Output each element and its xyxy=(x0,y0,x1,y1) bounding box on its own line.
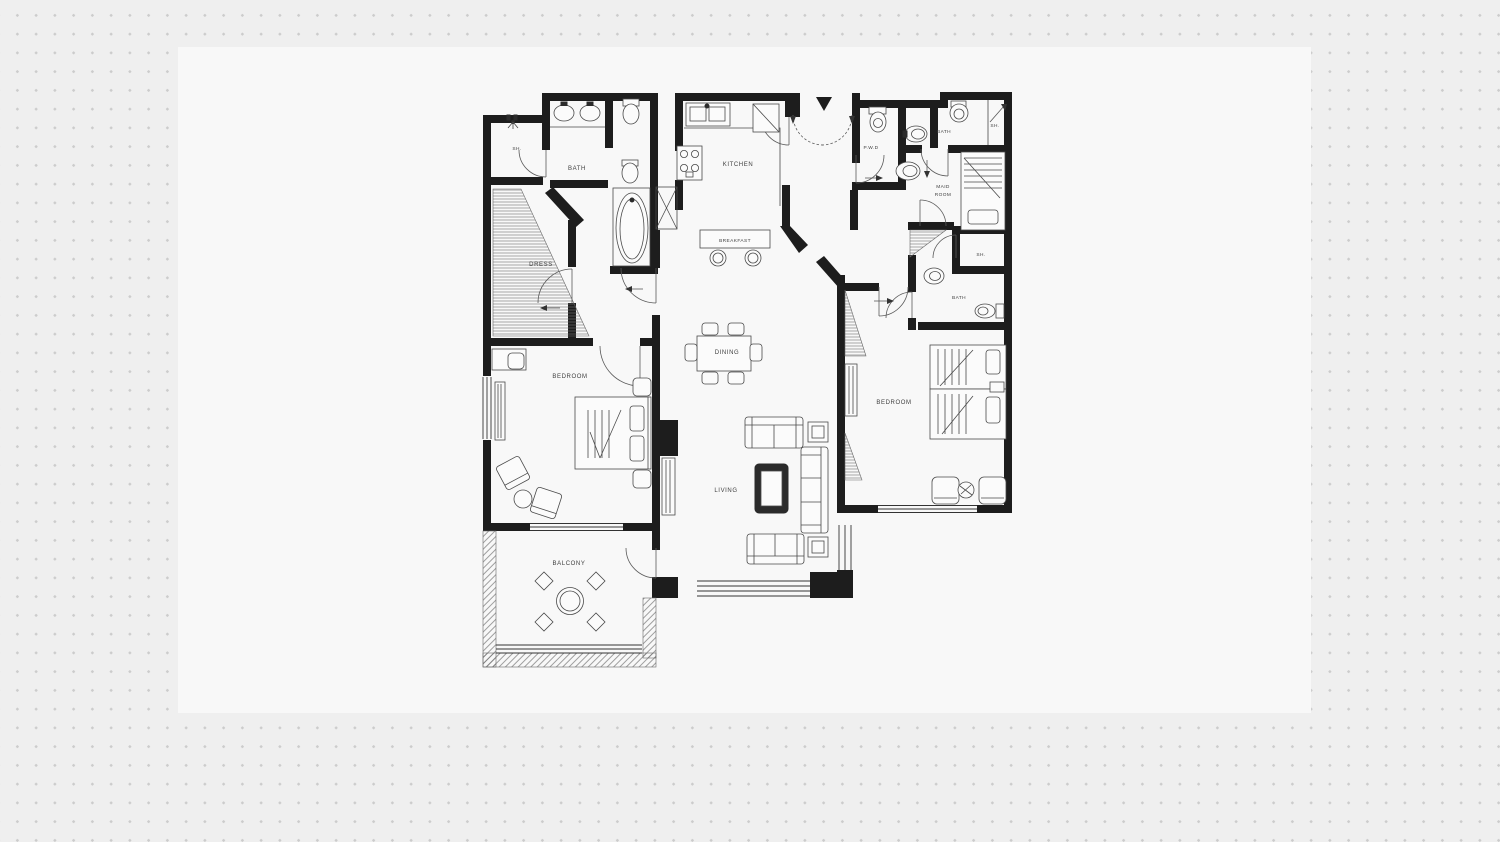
sofa-three-seat xyxy=(801,447,828,533)
toilet-icon xyxy=(870,112,886,132)
sink-icon xyxy=(896,162,920,180)
dresser xyxy=(495,382,505,440)
window-bedroom-left-bottom xyxy=(530,521,623,532)
pillow xyxy=(630,436,644,461)
chair-icon xyxy=(702,323,718,335)
balcony-wall-bottom-hatch xyxy=(483,653,656,667)
bidet-icon xyxy=(622,163,638,183)
door-shower-top-left xyxy=(519,150,546,177)
pillow xyxy=(986,397,1000,423)
window-bedroom-left-side xyxy=(481,376,492,440)
room-label-shower-top-left: SH. xyxy=(512,146,521,152)
chair-icon xyxy=(535,572,553,590)
toilet-icon xyxy=(623,104,639,124)
maid-closet-hatch xyxy=(910,230,946,257)
armchair xyxy=(932,477,959,504)
room-label-dress: DRESS xyxy=(529,262,553,268)
balcony-wall-left-hatch xyxy=(483,531,496,667)
balcony-railing xyxy=(496,645,642,653)
bath-right-fixtures xyxy=(924,268,1004,318)
sink-icon xyxy=(554,105,574,121)
desk-chair xyxy=(508,353,524,369)
bedroom-right-furniture xyxy=(845,345,1006,504)
bedroom-right-closet-bottom-hatch xyxy=(845,433,862,480)
sink-icon xyxy=(580,105,600,121)
living-furniture xyxy=(662,417,828,564)
stove-icon xyxy=(677,146,702,180)
door-balcony xyxy=(626,548,656,578)
room-label-shower-right: SH. xyxy=(976,252,985,258)
chair-icon xyxy=(702,372,718,384)
room-label-balcony: BALCONY xyxy=(553,561,586,567)
room-label-bedroom-right: BEDROOM xyxy=(876,400,911,406)
room-label-dining: DINING xyxy=(715,350,740,356)
pwd-fixtures xyxy=(869,107,920,180)
floor-plan-drawing: SH. BATH DRESS KITCHEN BREAKFAST P.W.D B… xyxy=(478,86,1030,676)
round-side-table xyxy=(514,490,532,508)
side-table xyxy=(808,422,828,442)
sink-icon xyxy=(905,126,927,142)
pillow xyxy=(986,350,1000,374)
pillow xyxy=(630,406,644,431)
door-entry xyxy=(790,115,855,145)
service-shaft xyxy=(656,187,677,229)
stool-icon xyxy=(710,250,726,266)
nightstand xyxy=(633,378,651,396)
chair-icon xyxy=(685,344,697,361)
room-label-bedroom-left: BEDROOM xyxy=(552,374,587,380)
coffee-table-top xyxy=(761,471,782,506)
chair-icon xyxy=(728,372,744,384)
sofa-two-seat xyxy=(747,534,804,564)
room-label-bath-right: BATH xyxy=(952,295,966,301)
door-bedroom-right xyxy=(879,287,908,316)
shower-arrow-icon xyxy=(990,106,1004,122)
sink-icon xyxy=(924,268,944,284)
stool-icon xyxy=(745,250,761,266)
round-table xyxy=(557,588,584,615)
window-bedroom-right-bottom xyxy=(878,503,977,514)
page-background: SH. BATH DRESS KITCHEN BREAKFAST P.W.D B… xyxy=(0,0,1500,842)
armchair xyxy=(979,477,1006,504)
balcony-wall-right-hatch xyxy=(643,598,656,658)
lounge-chair xyxy=(495,455,530,490)
chair-icon xyxy=(587,572,605,590)
room-label-maid-line2: ROOM xyxy=(935,192,952,198)
room-label-bath-top-right: BATH xyxy=(937,129,951,135)
room-label-shower-top-right: SH. xyxy=(990,123,999,129)
room-label-pwd: P.W.D xyxy=(864,145,879,151)
chair-icon xyxy=(728,323,744,335)
nightstand xyxy=(990,382,1004,392)
breakfast-bar xyxy=(700,230,770,266)
window-living-right xyxy=(836,525,854,570)
room-label-living: LIVING xyxy=(714,488,737,494)
chair-icon xyxy=(535,613,553,631)
room-label-bath-top-left: BATH xyxy=(568,166,586,172)
balcony-furniture xyxy=(535,572,605,631)
room-label-kitchen: KITCHEN xyxy=(723,162,754,168)
chair-icon xyxy=(750,344,762,361)
entry-direction-triangle xyxy=(816,97,832,111)
chair-icon xyxy=(587,613,605,631)
maid-room-furniture xyxy=(961,152,1005,230)
dresser xyxy=(845,364,857,416)
pillow xyxy=(968,210,998,224)
bedroom-right-closet-top-hatch xyxy=(845,290,866,356)
kitchen-fixtures xyxy=(677,103,780,206)
side-table xyxy=(808,537,828,557)
room-label-maid-line1: MAID xyxy=(936,184,950,190)
tv-console xyxy=(662,458,675,515)
room-label-breakfast: BREAKFAST xyxy=(719,238,751,244)
toilet-tank-icon xyxy=(996,304,1004,318)
nightstand xyxy=(633,470,651,488)
window-living-bottom xyxy=(697,578,810,599)
bathtub-icon xyxy=(616,193,648,263)
lounge-chair xyxy=(530,487,563,520)
